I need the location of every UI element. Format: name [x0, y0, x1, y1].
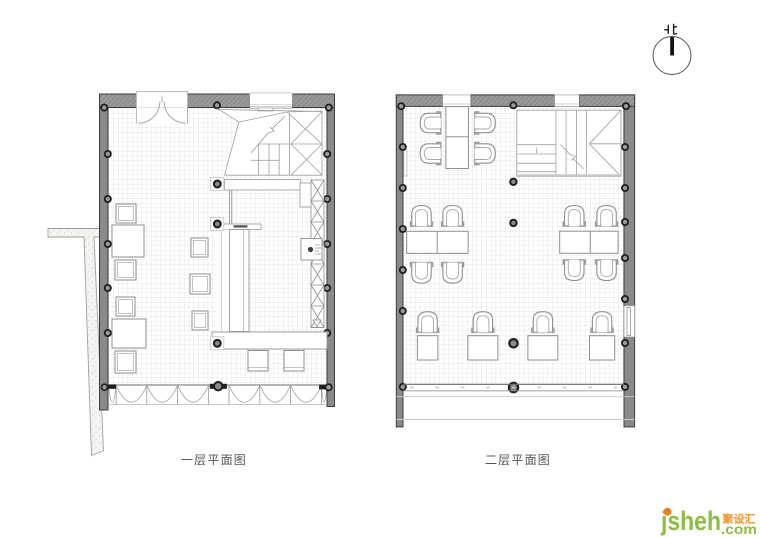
svg-text:二层平面图: 二层平面图 [485, 453, 551, 467]
svg-text:聚设汇: 聚设汇 [721, 513, 756, 526]
svg-text:一层平面图: 一层平面图 [181, 453, 247, 467]
